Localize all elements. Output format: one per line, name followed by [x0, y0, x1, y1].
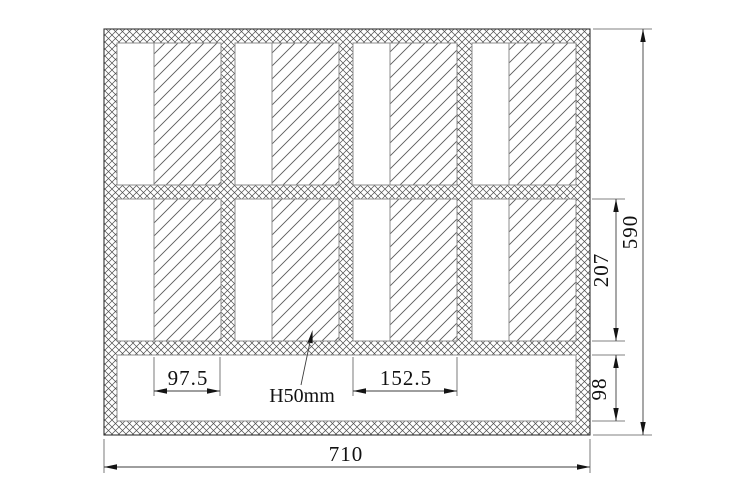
- cell-r2-c3: [353, 199, 457, 341]
- core-panel: [154, 43, 221, 185]
- dim-label-total-width: 710: [329, 442, 364, 466]
- cell-r2-c4: [472, 199, 576, 341]
- dim-label-row-height: 207: [589, 253, 613, 288]
- dim-label-cell-width: 152.5: [380, 366, 432, 390]
- core-panel: [272, 199, 339, 341]
- cell-r1-c1: [117, 43, 221, 185]
- cell-r2-c1: [117, 199, 221, 341]
- technical-drawing: 710 590 207 98 97.5 152.5: [0, 0, 750, 500]
- core-panel: [390, 199, 457, 341]
- dim-label-strip-height: 98: [587, 378, 611, 401]
- core-panel: [154, 199, 221, 341]
- core-panel: [509, 43, 576, 185]
- dim-label-core-width: 97.5: [168, 366, 209, 390]
- core-panel: [272, 43, 339, 185]
- core-panel: [390, 43, 457, 185]
- leader-label: H50mm: [269, 385, 335, 407]
- cell-r1-c3: [353, 43, 457, 185]
- cell-r1-c4: [472, 43, 576, 185]
- core-panel: [509, 199, 576, 341]
- dim-label-total-height: 590: [618, 215, 642, 250]
- cell-r2-c2: [235, 199, 339, 341]
- cell-r1-c2: [235, 43, 339, 185]
